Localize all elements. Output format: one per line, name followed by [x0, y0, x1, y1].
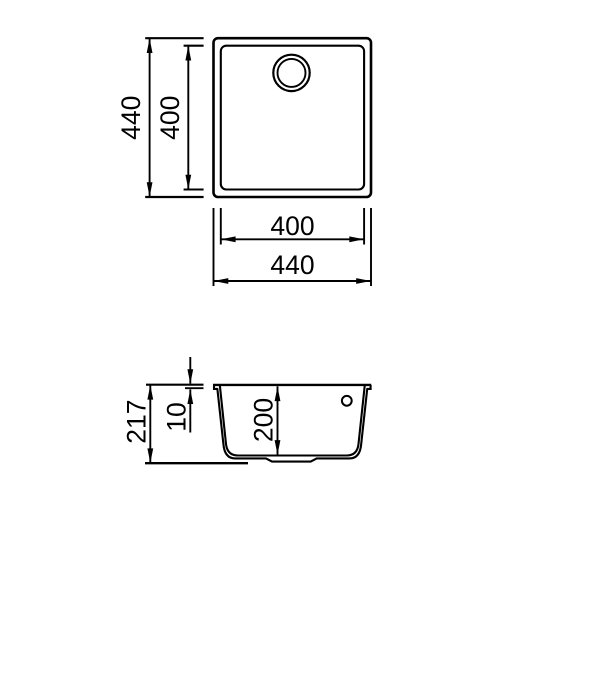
svg-text:400: 400 — [155, 96, 185, 140]
svg-text:440: 440 — [116, 96, 146, 140]
svg-text:217: 217 — [122, 399, 152, 443]
svg-text:10: 10 — [161, 402, 191, 431]
svg-text:440: 440 — [270, 250, 314, 280]
svg-text:200: 200 — [248, 398, 278, 442]
svg-text:400: 400 — [270, 211, 314, 241]
